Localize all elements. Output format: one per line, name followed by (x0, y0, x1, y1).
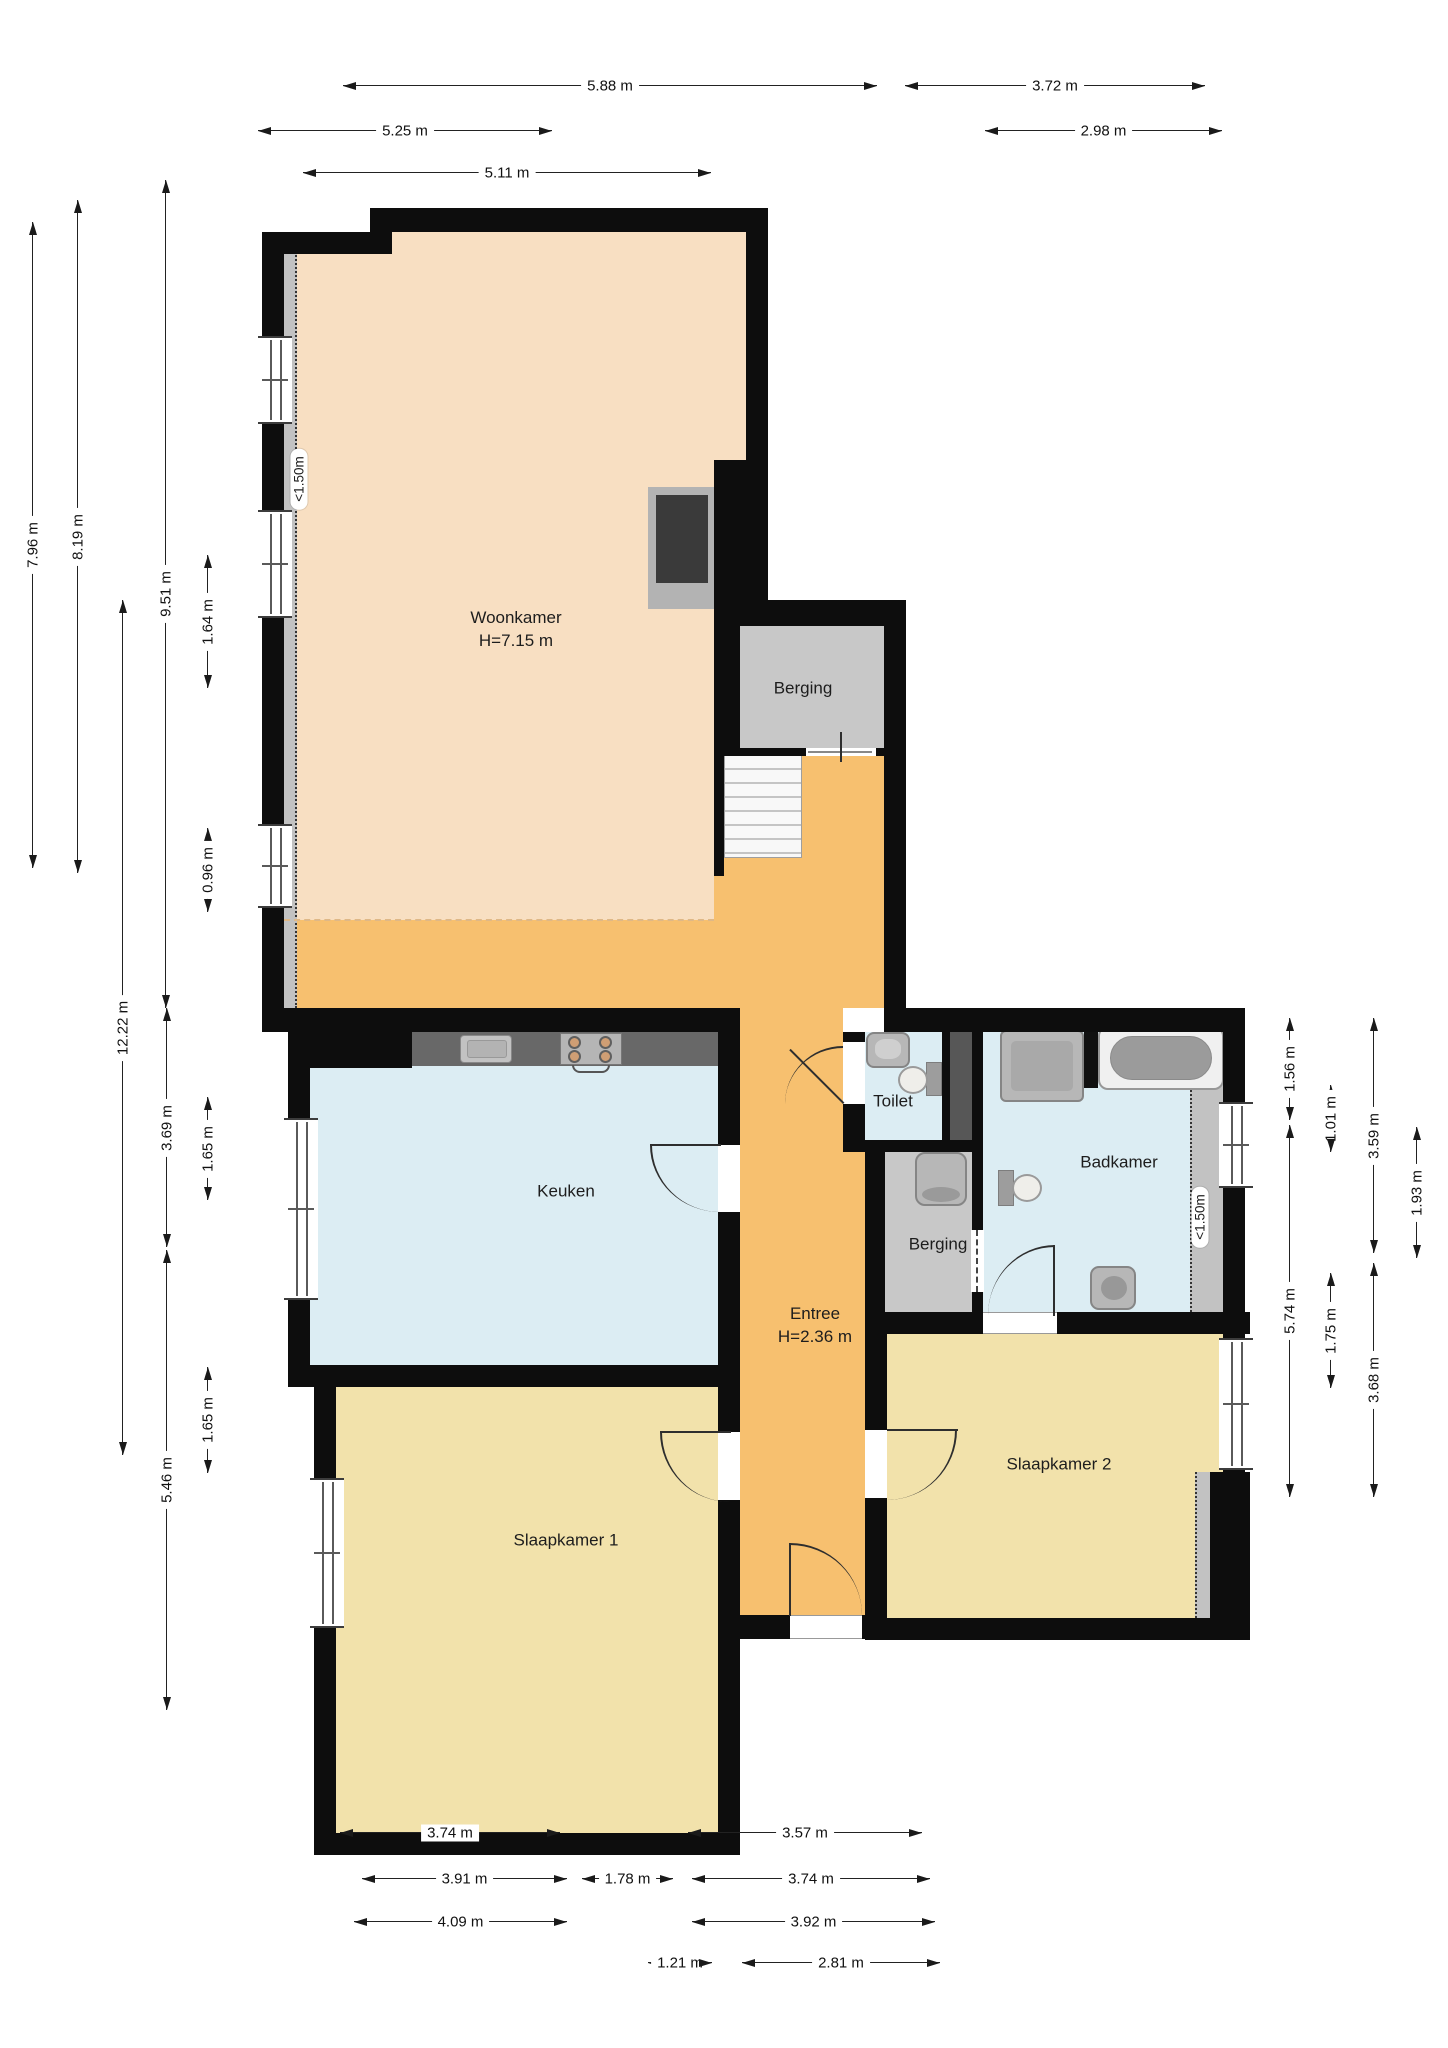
dim-top-2: 3.72 m (905, 85, 1205, 86)
dim-bottom-2: 3.57 m (688, 1832, 922, 1833)
dim-top-5: 5.11 m (303, 172, 711, 173)
dim-right-6: 1.75 m (1330, 1273, 1331, 1388)
low-ceiling-label: <1.50m (291, 448, 308, 509)
stove (560, 1033, 622, 1065)
dim-bottom-9: 2.81 m (742, 1962, 940, 1963)
window (258, 510, 292, 618)
room-label-entree: EntreeH=2.36 m (778, 1303, 852, 1349)
low-ceiling-label: <1.50m (1192, 1186, 1209, 1247)
wall (714, 460, 768, 610)
dim-label: 0.96 m (200, 841, 217, 899)
room-label-badkamer: Badkamer (1080, 1152, 1157, 1175)
dim-label: 1.64 m (200, 593, 217, 651)
toilet-bowl (1012, 1174, 1042, 1202)
room-label-slaapkamer-2: Slaapkamer 2 (1007, 1454, 1112, 1477)
chimney-flue (656, 495, 708, 583)
dim-label: 5.46 m (159, 1451, 176, 1509)
dim-right-7: 3.68 m (1373, 1263, 1374, 1497)
dim-left-9: 5.46 m (166, 1250, 167, 1710)
wall (718, 1008, 740, 1615)
window (284, 1118, 318, 1300)
front-door-opening (790, 1615, 862, 1639)
divider-wall (1084, 1030, 1098, 1088)
door-opening (718, 1145, 740, 1212)
dim-top-3: 5.25 m (258, 130, 552, 131)
dim-left-2: 8.19 m (77, 200, 78, 873)
dim-bottom-3: 3.91 m (362, 1878, 567, 1879)
window (310, 1478, 344, 1628)
room-label-woonkamer: WoonkamerH=7.15 m (470, 607, 561, 653)
dim-label: 3.72 m (1026, 78, 1084, 95)
duct-shaft (950, 1032, 972, 1140)
dim-right-4: 1.93 m (1416, 1127, 1417, 1258)
room-woonkamer (724, 232, 746, 460)
room-label-keuken: Keuken (537, 1181, 595, 1204)
dim-right-5: 5.74 m (1289, 1125, 1290, 1497)
room-slaapkamer-1 (336, 1387, 718, 1833)
dim-right-2: 1.01 m (1330, 1085, 1331, 1152)
dim-label: 1.93 m (1409, 1164, 1426, 1222)
dim-bottom-1: 3.74 m (340, 1832, 560, 1833)
dim-label: 5.25 m (376, 123, 434, 140)
wall (884, 1008, 1245, 1032)
dim-right-1: 1.56 m (1289, 1018, 1290, 1120)
low-ceiling-strip (1195, 1472, 1210, 1618)
kitchen-sink (460, 1035, 512, 1063)
wall (865, 1618, 1250, 1640)
dim-bottom-4: 1.78 m (582, 1878, 673, 1879)
dim-label: 5.11 m (479, 165, 536, 182)
wall (288, 1365, 740, 1387)
dim-label: 1.21 m (651, 1955, 709, 1972)
dim-label: 3.92 m (785, 1914, 843, 1931)
door-leaf (650, 1144, 721, 1146)
door-leaf (887, 1429, 958, 1431)
room-label-slaapkamer-1: Slaapkamer 1 (514, 1530, 619, 1553)
dim-label: 1.65 m (200, 1120, 217, 1178)
wall (718, 1615, 740, 1855)
dim-left-10: 1.65 m (207, 1367, 208, 1473)
shower (1000, 1030, 1084, 1102)
dim-bottom-5: 3.74 m (692, 1878, 930, 1879)
room-label-berging-boven: Berging (774, 678, 833, 701)
dim-label: 5.88 m (581, 78, 639, 95)
room-entree (284, 920, 724, 1008)
dim-left-1: 7.96 m (32, 222, 33, 868)
dim-label: 7.96 m (25, 516, 42, 574)
dim-label: 12.22 m (115, 994, 132, 1060)
dim-label: 3.74 m (782, 1871, 840, 1888)
open-boundary (284, 919, 714, 921)
floor-plan: WoonkamerH=7.15 m Berging Keuken Toilet … (0, 0, 1448, 2048)
room-entree (843, 1152, 865, 1615)
dim-bottom-7: 3.92 m (692, 1921, 935, 1922)
dim-label: 1.65 m (200, 1391, 217, 1449)
wall (714, 626, 724, 876)
dim-label: 3.74 m (421, 1825, 479, 1842)
dim-label: 3.69 m (159, 1099, 176, 1157)
dim-right-3: 3.59 m (1373, 1018, 1374, 1253)
dim-label: 1.01 m (1323, 1090, 1340, 1148)
door-opening (983, 1312, 1057, 1334)
room-label-berging-klein: Berging (909, 1234, 968, 1257)
wall (884, 600, 906, 1032)
wall (714, 600, 906, 626)
window (1219, 1102, 1253, 1188)
dim-label: 8.19 m (70, 508, 87, 566)
wall (746, 208, 768, 460)
window (258, 824, 292, 908)
dim-label: 2.81 m (812, 1955, 870, 1972)
oven-handle (572, 1065, 610, 1073)
dim-label: 9.51 m (158, 565, 175, 623)
door-leaf (660, 1431, 731, 1433)
room-keuken (310, 1032, 718, 1365)
dim-left-7: 3.69 m (166, 1008, 167, 1247)
room-label-toilet: Toilet (873, 1091, 913, 1114)
dim-label: 5.74 m (1282, 1282, 1299, 1340)
staircase (724, 755, 802, 858)
bathtub (1098, 1026, 1224, 1090)
dim-left-3: 12.22 m (122, 600, 123, 1455)
wall (865, 1312, 1250, 1334)
wall (1210, 1472, 1250, 1640)
door-leaf (1053, 1245, 1055, 1316)
window (258, 336, 292, 424)
dim-label: 1.78 m (599, 1871, 657, 1888)
wall (865, 1140, 885, 1315)
dim-top-1: 5.88 m (343, 85, 877, 86)
dim-label: 4.09 m (432, 1914, 490, 1931)
door-opening (843, 1042, 865, 1104)
dim-label: 3.68 m (1366, 1351, 1383, 1409)
dim-left-6: 0.96 m (207, 828, 208, 912)
pocket-door (971, 1230, 984, 1292)
dim-left-8: 1.65 m (207, 1097, 208, 1200)
dim-label: 3.59 m (1366, 1107, 1383, 1165)
wall (370, 208, 768, 232)
dim-label: 1.75 m (1323, 1302, 1340, 1360)
door-leaf (789, 1543, 791, 1616)
dim-left-4: 9.51 m (165, 180, 166, 1008)
dim-label: 2.98 m (1075, 123, 1133, 140)
toilet-cistern (926, 1062, 942, 1096)
door-opening (865, 1430, 887, 1498)
wall (942, 1032, 950, 1152)
room-slaapkamer-2 (887, 1472, 1195, 1618)
dim-label: 3.57 m (776, 1825, 834, 1842)
wall (972, 1032, 983, 1152)
wall (314, 1833, 740, 1855)
dim-bottom-8: 1.21 m (648, 1962, 712, 1963)
hand-basin (866, 1032, 910, 1068)
dim-label: 1.56 m (1282, 1040, 1299, 1098)
door-mark (840, 732, 842, 762)
water-heater (915, 1152, 967, 1206)
washing-machine (1090, 1266, 1136, 1310)
dim-label: 3.91 m (436, 1871, 494, 1888)
dim-bottom-6: 4.09 m (354, 1921, 567, 1922)
dim-left-5: 1.64 m (207, 555, 208, 688)
dim-top-4: 2.98 m (985, 130, 1222, 131)
window (1219, 1338, 1253, 1470)
wall (724, 626, 740, 748)
